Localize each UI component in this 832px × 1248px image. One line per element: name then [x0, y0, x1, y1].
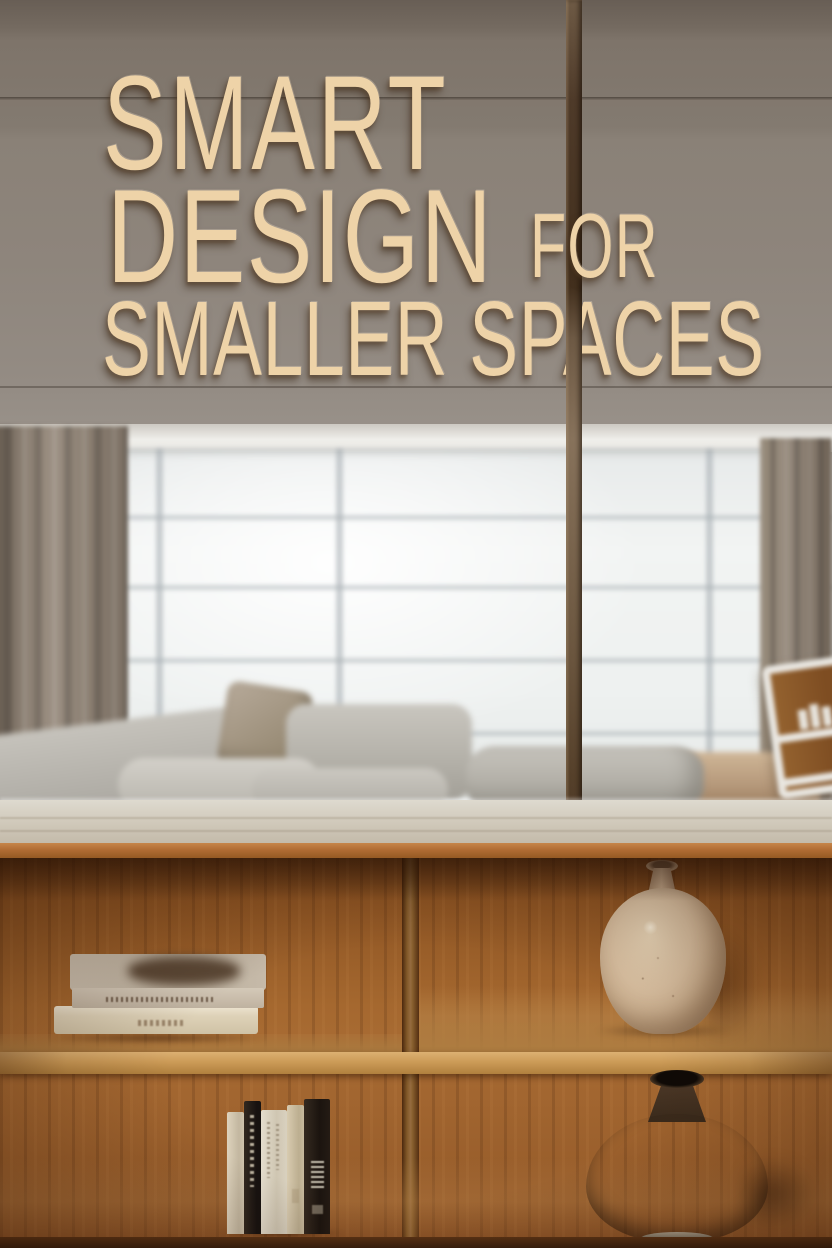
stacked-book-top-spine-text	[106, 997, 216, 1002]
mini-book	[798, 709, 810, 730]
headline-line-2: DESIGN	[107, 171, 493, 304]
side-unit-shelf-2	[785, 768, 832, 786]
mini-book	[809, 704, 821, 729]
mini-book	[821, 706, 832, 727]
countertop-surface	[0, 800, 832, 844]
interior-scene: SMART DESIGN FOR SMALLER SPACES	[0, 0, 832, 1248]
standing-book-1	[227, 1112, 244, 1234]
stacked-book-top-cover-art	[128, 957, 240, 985]
stacked-book-bottom-spine-text	[138, 1020, 184, 1026]
shelf-bottom-edge	[0, 1237, 832, 1248]
headline-line-2-suffix: FOR	[530, 201, 659, 292]
standing-book-4	[287, 1105, 304, 1234]
dark-vase-rim	[650, 1070, 704, 1088]
standing-book-5-spine-mark	[312, 1205, 323, 1214]
side-unit-books	[798, 706, 832, 730]
sectional-sofa	[0, 676, 780, 808]
standing-book-2-spine-text	[250, 1115, 254, 1187]
standing-book-3-spine-text	[267, 1122, 270, 1178]
dark-vase-body	[586, 1114, 768, 1242]
standing-book-4-spine-mark	[292, 1189, 299, 1203]
wood-grain-line	[0, 830, 832, 832]
standing-book-5-spine-text	[311, 1161, 324, 1189]
support-pole	[566, 0, 582, 845]
wood-grain-line	[0, 817, 832, 819]
oak-bookshelf	[0, 858, 832, 1248]
standing-book-3	[261, 1110, 287, 1234]
standing-book-3-spine-text	[276, 1124, 279, 1170]
shelf-board-front-edge	[0, 1052, 832, 1074]
standing-book-2	[244, 1101, 261, 1234]
cream-vase-body	[600, 888, 726, 1034]
standing-book-5	[304, 1099, 330, 1234]
